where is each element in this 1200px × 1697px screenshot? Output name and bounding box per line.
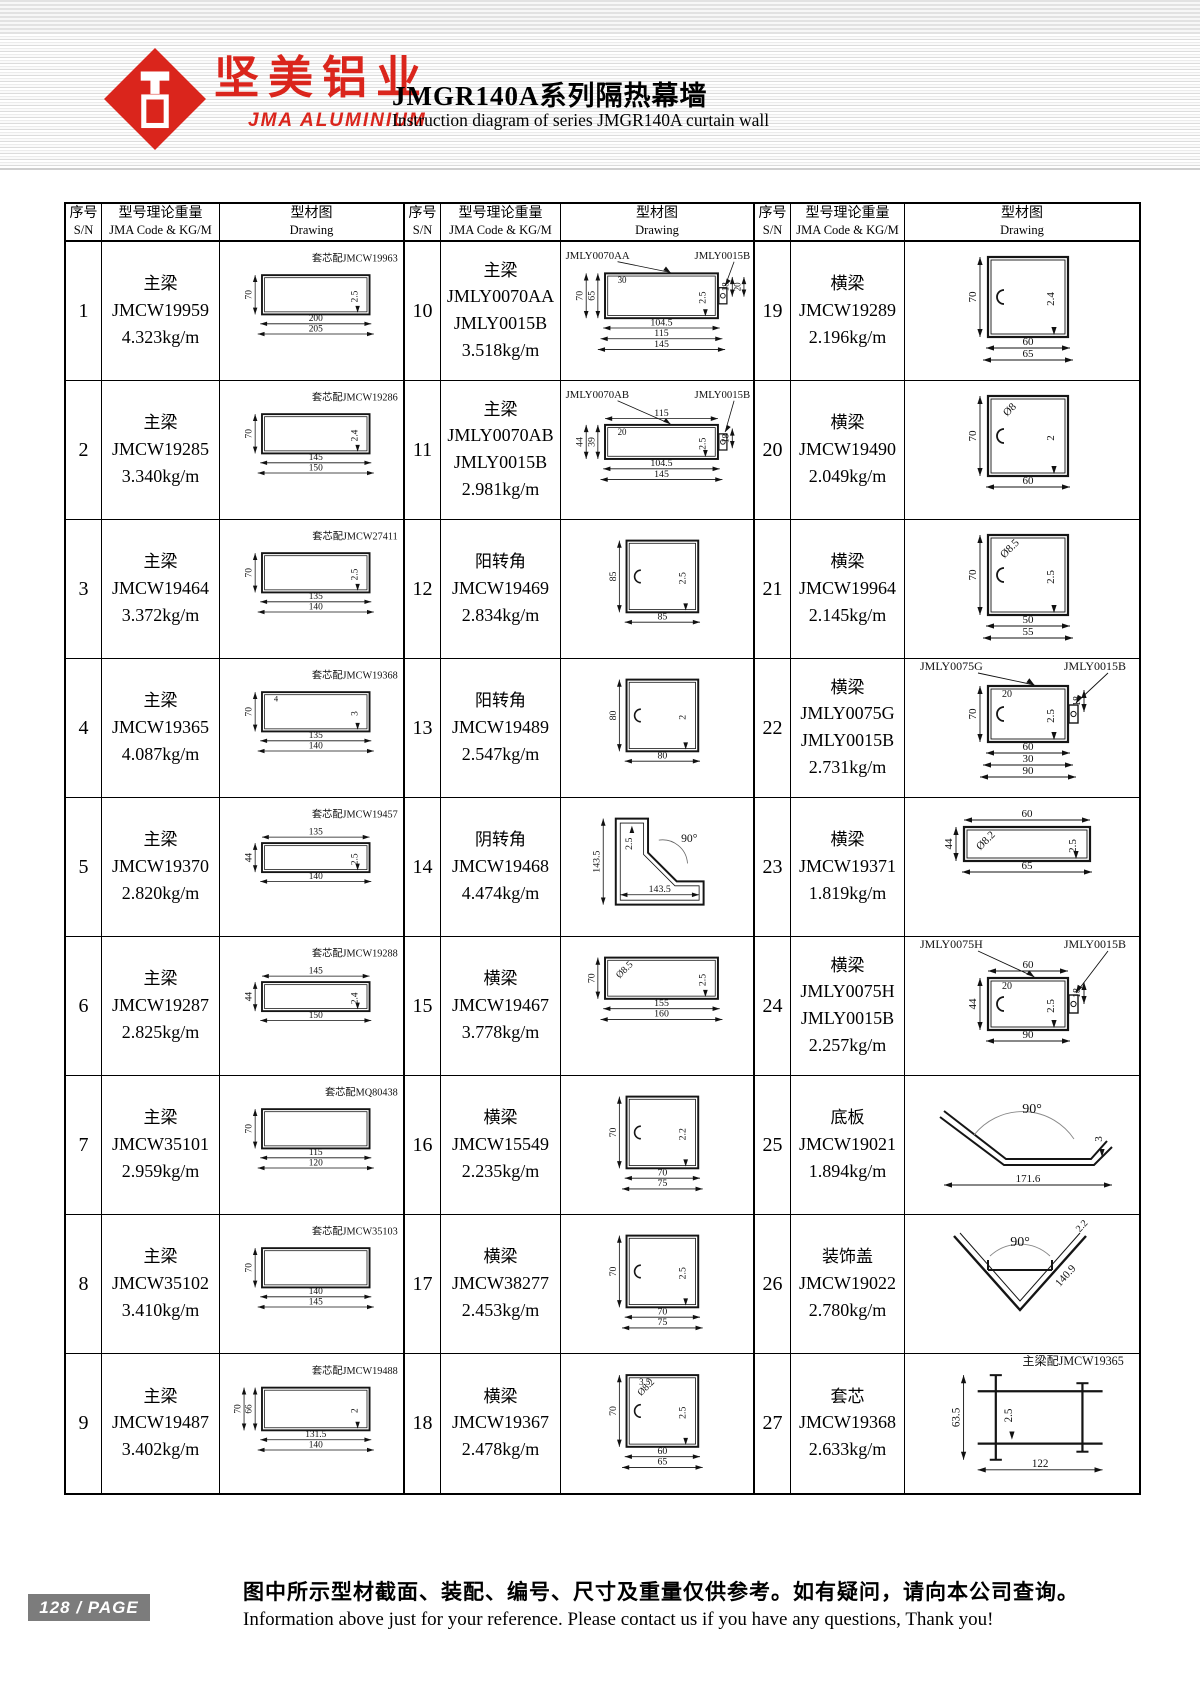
profile-drawing: 7060652.4 xyxy=(906,243,1138,379)
profile-code: JMCW19285 xyxy=(112,436,209,463)
svg-text:44: 44 xyxy=(943,838,955,850)
entry-drawing-cell: 70140145套芯配JMCW35103 xyxy=(220,1215,405,1354)
entry-code-cell: 装饰盖 JMCW19022 2.780kg/m xyxy=(791,1215,905,1354)
profile-type: 主梁 xyxy=(144,1105,178,1131)
profile-code: JMCW15549 xyxy=(452,1131,549,1158)
entry-code-cell: 主梁 JMCW19287 2.825kg/m xyxy=(102,937,220,1076)
profile-drawing: 7066131.51402套芯配JMCW19488 xyxy=(221,1355,402,1492)
svg-text:171.6: 171.6 xyxy=(1016,1173,1041,1185)
profile-drawing: 701351402.5套芯配JMCW27411 xyxy=(221,521,402,657)
entry-code-cell: 阳转角 JMCW19489 2.547kg/m xyxy=(441,659,561,798)
entry-code-cell: 横梁 JMCW19289 2.196kg/m xyxy=(791,242,905,381)
svg-text:套芯配JMCW19288: 套芯配JMCW19288 xyxy=(312,946,398,959)
svg-text:140.9: 140.9 xyxy=(1053,1262,1079,1289)
svg-text:70: 70 xyxy=(657,1167,667,1178)
profile-weight: 2.453kg/m xyxy=(462,1297,540,1324)
profile-codes: JMCW19487 xyxy=(112,1409,209,1436)
svg-text:115: 115 xyxy=(309,1148,323,1158)
profile-code: JMLY0015B xyxy=(800,1005,894,1032)
profile-type: 横梁 xyxy=(831,271,865,297)
svg-text:80: 80 xyxy=(657,750,667,761)
col-header-code-en: JMA Code & KG/M xyxy=(449,223,551,239)
svg-text:70: 70 xyxy=(967,708,979,720)
svg-text:2.5: 2.5 xyxy=(697,974,708,986)
page-subtitle: Instruction diagram of series JMGR140A c… xyxy=(392,110,769,131)
col-header-code-en: JMA Code & KG/M xyxy=(109,223,211,239)
page-number-badge: 128 / PAGE xyxy=(28,1594,150,1621)
entry-sn: 23 xyxy=(755,798,791,937)
profile-codes: JMCW19021 xyxy=(799,1131,896,1158)
entry-drawing-cell: 7070752.5 xyxy=(561,1215,755,1354)
profile-codes: JMLY0075HJMLY0015B xyxy=(800,978,894,1032)
profile-weight: 2.478kg/m xyxy=(462,1436,540,1463)
entry-drawing-cell: 70115120套芯配MQ80438 xyxy=(220,1076,405,1215)
svg-text:套芯配JMCW19286: 套芯配JMCW19286 xyxy=(312,390,398,403)
col-header-drawing-cn: 型材图 xyxy=(291,205,333,223)
profile-codes: JMCW19370 xyxy=(112,853,209,880)
profile-type: 横梁 xyxy=(831,827,865,853)
profile-type: 主梁 xyxy=(484,397,518,423)
svg-text:JMLY0015B: JMLY0015B xyxy=(695,250,751,262)
svg-text:90°: 90° xyxy=(681,832,698,845)
svg-text:2.5: 2.5 xyxy=(697,291,708,303)
svg-text:2.5: 2.5 xyxy=(1045,999,1057,1013)
entry-drawing-cell: 7013514034套芯配JMCW19368 xyxy=(220,659,405,798)
entry-sn: 24 xyxy=(755,937,791,1076)
svg-text:套芯配JMCW27411: 套芯配JMCW27411 xyxy=(312,529,397,542)
svg-text:66: 66 xyxy=(245,1404,255,1414)
profile-weight: 3.402kg/m xyxy=(122,1436,200,1463)
profile-type: 底板 xyxy=(831,1105,865,1131)
svg-text:39: 39 xyxy=(586,437,597,447)
entry-code-cell: 主梁 JMCW35102 3.410kg/m xyxy=(102,1215,220,1354)
entry-drawing-cell: 70602Ø8 xyxy=(905,381,1139,520)
profile-drawing: 85852.5 xyxy=(562,521,752,657)
entry-code-cell: 主梁 JMCW19285 3.340kg/m xyxy=(102,381,220,520)
profile-code: JMCW19022 xyxy=(799,1270,896,1297)
entry-code-cell: 套芯 JMCW19368 2.633kg/m xyxy=(791,1354,905,1493)
svg-text:JMLY0015B: JMLY0015B xyxy=(1064,660,1126,673)
profile-code: JMCW19464 xyxy=(112,575,209,602)
col-header-sn-en: S/N xyxy=(74,223,93,239)
entry-sn: 12 xyxy=(405,520,441,659)
col-header-sn: 序号S/N xyxy=(405,204,441,242)
col-header-sn-cn: 序号 xyxy=(409,205,437,223)
svg-text:70: 70 xyxy=(608,1406,619,1416)
profile-code: JMCW19287 xyxy=(112,992,209,1019)
col-header-drawing-cn: 型材图 xyxy=(636,205,678,223)
footer-note-en: Information above just for your referenc… xyxy=(243,1609,1079,1631)
profile-type: 阳转角 xyxy=(475,688,526,714)
svg-text:70: 70 xyxy=(586,973,597,983)
profile-type: 横梁 xyxy=(484,966,518,992)
svg-text:2.4: 2.4 xyxy=(351,429,361,441)
svg-text:200: 200 xyxy=(309,314,323,324)
profile-code: JMLY0075H xyxy=(800,978,894,1005)
profile-weight: 2.820kg/m xyxy=(122,880,200,907)
entry-drawing-cell: 4460902.52018JMLY0075HJMLY0015B xyxy=(905,937,1139,1076)
svg-text:70: 70 xyxy=(657,1306,667,1317)
entry-drawing-cell: 143.5143.52.590° xyxy=(561,798,755,937)
entry-code-cell: 横梁 JMCW38277 2.453kg/m xyxy=(441,1215,561,1354)
svg-text:70: 70 xyxy=(245,290,255,300)
svg-text:115: 115 xyxy=(654,408,668,419)
svg-text:3.5: 3.5 xyxy=(639,1377,651,1387)
col-header-sn: 序号S/N xyxy=(755,204,791,242)
entry-sn: 1 xyxy=(66,242,102,381)
entry-drawing-cell: 主梁配JMCW1936563.52.5122 xyxy=(905,1354,1139,1493)
svg-text:50: 50 xyxy=(1023,614,1035,626)
svg-text:145: 145 xyxy=(309,967,323,977)
svg-text:2.4: 2.4 xyxy=(1045,292,1057,306)
profile-code: JMCW19370 xyxy=(112,853,209,880)
entry-code-cell: 主梁 JMCW19365 4.087kg/m xyxy=(102,659,220,798)
profile-drawing: 7060652.5Ø8.23.5 xyxy=(562,1355,752,1492)
svg-text:104.5: 104.5 xyxy=(650,458,672,469)
svg-text:2.4: 2.4 xyxy=(351,992,361,1004)
entry-code-cell: 主梁 JMCW19959 4.323kg/m xyxy=(102,242,220,381)
catalog-page: 坚美铝业 JMA ALUMINIUM JMGR140A系列隔热幕墙 Instru… xyxy=(0,0,1200,1697)
svg-text:70: 70 xyxy=(245,1124,255,1134)
svg-text:70: 70 xyxy=(245,707,255,717)
header-striped-band: 坚美铝业 JMA ALUMINIUM JMGR140A系列隔热幕墙 Instru… xyxy=(0,0,1200,170)
profile-code: JMCW38277 xyxy=(452,1270,549,1297)
profile-weight: 2.959kg/m xyxy=(122,1158,200,1185)
profile-code: JMCW19367 xyxy=(452,1409,549,1436)
svg-text:Ø8: Ø8 xyxy=(1001,401,1019,419)
entry-sn: 7 xyxy=(66,1076,102,1215)
profile-code: JMLY0070AB xyxy=(447,422,553,449)
svg-text:55: 55 xyxy=(1023,626,1035,638)
profile-code: JMLY0015B xyxy=(447,310,554,337)
svg-text:140: 140 xyxy=(309,741,323,751)
svg-text:70: 70 xyxy=(245,1263,255,1273)
entry-code-cell: 横梁 JMCW19371 1.819kg/m xyxy=(791,798,905,937)
profile-weight: 1.894kg/m xyxy=(809,1158,887,1185)
svg-text:套芯配JMCW19368: 套芯配JMCW19368 xyxy=(312,668,398,681)
svg-text:2: 2 xyxy=(678,715,689,720)
svg-text:135: 135 xyxy=(309,731,323,741)
svg-text:143.5: 143.5 xyxy=(592,850,603,872)
profile-drawing: 4439115104.51452.52018JMLY0070ABJMLY0015… xyxy=(562,382,752,518)
profile-drawing: 7070752.2 xyxy=(562,1077,752,1213)
profile-drawing: 7013514034套芯配JMCW19368 xyxy=(221,660,402,796)
col-header-sn: 序号S/N xyxy=(66,204,102,242)
profile-type: 阳转角 xyxy=(475,549,526,575)
profile-code: JMCW19469 xyxy=(452,575,549,602)
profile-weight: 2.235kg/m xyxy=(462,1158,540,1185)
entry-drawing-cell: 4439115104.51452.52018JMLY0070ABJMLY0015… xyxy=(561,381,755,520)
svg-text:Ø8.5: Ø8.5 xyxy=(614,959,636,981)
profile-drawing: 702002052.5套芯配JMCW19963 xyxy=(221,243,402,379)
col-header-sn-cn: 序号 xyxy=(70,205,98,223)
entry-code-cell: 底板 JMCW19021 1.894kg/m xyxy=(791,1076,905,1215)
profile-codes: JMCW19469 xyxy=(452,575,549,602)
col-header-drawing-cn: 型材图 xyxy=(1001,205,1043,223)
svg-text:60: 60 xyxy=(1023,475,1035,487)
profile-weight: 2.825kg/m xyxy=(122,1019,200,1046)
profile-drawing: 706030902.52018JMLY0075GJMLY0015B xyxy=(906,660,1138,796)
profile-codes: JMCW19959 xyxy=(112,297,209,324)
entry-sn: 18 xyxy=(405,1354,441,1493)
profile-weight: 4.323kg/m xyxy=(122,324,200,351)
svg-text:145: 145 xyxy=(654,469,669,480)
entry-code-cell: 主梁 JMCW35101 2.959kg/m xyxy=(102,1076,220,1215)
entry-drawing-cell: 90°3171.6 xyxy=(905,1076,1139,1215)
profile-drawing: 90°3171.6 xyxy=(906,1077,1138,1213)
svg-text:18: 18 xyxy=(721,433,731,442)
entry-code-cell: 主梁 JMCW19370 2.820kg/m xyxy=(102,798,220,937)
svg-text:140: 140 xyxy=(309,872,323,882)
svg-text:60: 60 xyxy=(657,1446,667,1457)
svg-text:155: 155 xyxy=(654,998,669,1009)
profile-type: 装饰盖 xyxy=(822,1244,873,1270)
profile-code: JMCW19289 xyxy=(799,297,896,324)
svg-text:140: 140 xyxy=(309,602,323,612)
profile-type: 主梁 xyxy=(144,1384,178,1410)
profile-codes: JMCW19467 xyxy=(452,992,549,1019)
profile-code: JMCW19959 xyxy=(112,297,209,324)
entry-drawing-cell: 702002052.5套芯配JMCW19963 xyxy=(220,242,405,381)
col-header-code-cn: 型号理论重量 xyxy=(459,205,543,223)
profile-weight: 1.819kg/m xyxy=(809,880,887,907)
profile-code: JMCW19365 xyxy=(112,714,209,741)
profile-code: JMCW19489 xyxy=(452,714,549,741)
entry-sn: 17 xyxy=(405,1215,441,1354)
svg-text:70: 70 xyxy=(575,291,586,301)
profile-weight: 3.778kg/m xyxy=(462,1019,540,1046)
profile-code: JMCW19021 xyxy=(799,1131,896,1158)
profile-codes: JMCW38277 xyxy=(452,1270,549,1297)
entry-drawing-cell: 7066131.51402套芯配JMCW19488 xyxy=(220,1354,405,1493)
svg-text:63.5: 63.5 xyxy=(951,1407,963,1427)
svg-text:145: 145 xyxy=(309,453,323,463)
profile-codes: JMCW35101 xyxy=(112,1131,209,1158)
svg-text:2.5: 2.5 xyxy=(697,437,708,449)
profile-code: JMLY0015B xyxy=(447,449,553,476)
svg-text:60: 60 xyxy=(1023,336,1035,348)
profile-code: JMCW19371 xyxy=(799,853,896,880)
entry-drawing-cell: 7050552.5Ø8.5 xyxy=(905,520,1139,659)
profile-type: 主梁 xyxy=(144,549,178,575)
svg-text:JMLY0015B: JMLY0015B xyxy=(1064,938,1126,951)
profile-weight: 4.087kg/m xyxy=(122,741,200,768)
profile-codes: JMCW15549 xyxy=(452,1131,549,1158)
svg-text:44: 44 xyxy=(575,437,586,447)
profile-weight: 3.410kg/m xyxy=(122,1297,200,1324)
profile-type: 横梁 xyxy=(831,410,865,436)
svg-text:60: 60 xyxy=(1023,741,1035,753)
profile-codes: JMLY0070ABJMLY0015B xyxy=(447,422,553,476)
svg-text:115: 115 xyxy=(654,328,668,339)
profile-code: JMCW19467 xyxy=(452,992,549,1019)
profile-type: 套芯 xyxy=(831,1384,865,1410)
entry-sn: 21 xyxy=(755,520,791,659)
profile-codes: JMCW19489 xyxy=(452,714,549,741)
entry-drawing-cell: 7070752.2 xyxy=(561,1076,755,1215)
svg-text:2.5: 2.5 xyxy=(1045,709,1057,723)
profile-code: JMCW35101 xyxy=(112,1131,209,1158)
svg-text:2.5: 2.5 xyxy=(351,568,361,580)
footer-note: 图中所示型材截面、装配、编号、尺寸及重量仅供参考。如有疑问，请向本公司查询。 I… xyxy=(243,1576,1079,1631)
svg-text:60: 60 xyxy=(1023,959,1035,971)
profile-code: JMLY0015B xyxy=(800,727,894,754)
svg-text:20: 20 xyxy=(618,427,627,437)
svg-text:160: 160 xyxy=(654,1009,669,1020)
profile-code: JMCW19468 xyxy=(452,853,549,880)
entry-drawing-cell: 441351402.5套芯配JMCW19457 xyxy=(220,798,405,937)
profile-codes: JMCW19367 xyxy=(452,1409,549,1436)
profile-codes: JMCW19371 xyxy=(799,853,896,880)
entry-code-cell: 横梁 JMCW19467 3.778kg/m xyxy=(441,937,561,1076)
entry-drawing-cell: 7060652.4 xyxy=(905,242,1139,381)
col-header-drawing: 型材图Drawing xyxy=(220,204,405,242)
svg-text:70: 70 xyxy=(234,1404,244,1414)
entry-drawing-cell: 80802 xyxy=(561,659,755,798)
profile-code: JMCW19368 xyxy=(799,1409,896,1436)
profile-drawing: 90°140.92.2 xyxy=(906,1216,1138,1352)
profile-codes: JMLY0075GJMLY0015B xyxy=(800,700,894,754)
entry-code-cell: 主梁 JMLY0070AAJMLY0015B 3.518kg/m xyxy=(441,242,561,381)
entry-code-cell: 横梁 JMCW19964 2.145kg/m xyxy=(791,520,905,659)
svg-text:2.5: 2.5 xyxy=(1003,1408,1015,1422)
svg-text:主梁配JMCW19365: 主梁配JMCW19365 xyxy=(1022,1355,1123,1368)
profile-type: 主梁 xyxy=(144,688,178,714)
svg-text:2.5: 2.5 xyxy=(351,290,361,302)
profile-weight: 2.547kg/m xyxy=(462,741,540,768)
svg-text:70: 70 xyxy=(967,569,979,581)
profile-drawing: 701551602.5Ø8.5 xyxy=(562,938,752,1074)
svg-text:65: 65 xyxy=(657,1457,667,1468)
entry-code-cell: 阴转角 JMCW19468 4.474kg/m xyxy=(441,798,561,937)
svg-text:套芯配JMCW19963: 套芯配JMCW19963 xyxy=(312,251,398,264)
entry-drawing-cell: 701551602.5Ø8.5 xyxy=(561,937,755,1076)
svg-text:60: 60 xyxy=(1022,808,1034,820)
profile-code: JMCW19490 xyxy=(799,436,896,463)
svg-text:3: 3 xyxy=(1093,1136,1105,1142)
col-header-code: 型号理论重量JMA Code & KG/M xyxy=(102,204,220,242)
entry-code-cell: 横梁 JMCW19490 2.049kg/m xyxy=(791,381,905,520)
entry-code-cell: 横梁 JMCW15549 2.235kg/m xyxy=(441,1076,561,1215)
svg-text:Ø8.5: Ø8.5 xyxy=(998,537,1022,561)
svg-text:套芯配JMCW19457: 套芯配JMCW19457 xyxy=(312,807,398,820)
col-header-sn-cn: 序号 xyxy=(759,205,787,223)
profile-weight: 2.049kg/m xyxy=(809,463,887,490)
svg-text:44: 44 xyxy=(245,853,255,863)
profile-drawing: 4460652.5Ø8.2 xyxy=(906,799,1138,935)
entry-code-cell: 主梁 JMLY0070ABJMLY0015B 2.981kg/m xyxy=(441,381,561,520)
profile-type: 阴转角 xyxy=(475,827,526,853)
entry-sn: 22 xyxy=(755,659,791,798)
col-header-code-en: JMA Code & KG/M xyxy=(796,223,898,239)
svg-text:JMLY0070AB: JMLY0070AB xyxy=(566,389,629,401)
col-header-drawing: 型材图Drawing xyxy=(905,204,1139,242)
svg-text:150: 150 xyxy=(309,463,323,473)
profile-type: 主梁 xyxy=(484,258,518,284)
svg-text:2.2: 2.2 xyxy=(1074,1218,1091,1235)
svg-text:70: 70 xyxy=(245,429,255,439)
svg-text:2: 2 xyxy=(351,1408,361,1413)
svg-text:Ø8.2: Ø8.2 xyxy=(974,829,998,853)
svg-text:135: 135 xyxy=(309,828,323,838)
svg-text:2.5: 2.5 xyxy=(1067,839,1079,853)
col-header-drawing-en: Drawing xyxy=(1000,223,1044,239)
profile-weight: 2.196kg/m xyxy=(809,324,887,351)
profile-drawing: 主梁配JMCW1936563.52.5122 xyxy=(906,1355,1138,1492)
svg-text:2.2: 2.2 xyxy=(678,1128,689,1140)
svg-text:20: 20 xyxy=(732,282,742,291)
svg-text:70: 70 xyxy=(967,291,979,303)
profile-type: 主梁 xyxy=(144,827,178,853)
entry-sn: 20 xyxy=(755,381,791,520)
svg-text:75: 75 xyxy=(657,1317,667,1328)
svg-text:70: 70 xyxy=(608,1266,619,1276)
entry-code-cell: 横梁 JMLY0075HJMLY0015B 2.257kg/m xyxy=(791,937,905,1076)
profile-type: 主梁 xyxy=(144,1244,178,1270)
profile-codes: JMCW19468 xyxy=(452,853,549,880)
profile-drawing: 7070752.5 xyxy=(562,1216,752,1352)
svg-text:143.5: 143.5 xyxy=(649,884,671,895)
svg-text:90: 90 xyxy=(1023,765,1035,777)
entry-sn: 8 xyxy=(66,1215,102,1354)
svg-text:131.5: 131.5 xyxy=(305,1430,326,1440)
profile-codes: JMCW19490 xyxy=(799,436,896,463)
svg-text:套芯配MQ80438: 套芯配MQ80438 xyxy=(325,1085,398,1098)
svg-text:3: 3 xyxy=(351,711,361,716)
entry-code-cell: 阳转角 JMCW19469 2.834kg/m xyxy=(441,520,561,659)
svg-text:JMLY0075H: JMLY0075H xyxy=(920,938,983,951)
svg-text:70: 70 xyxy=(608,1127,619,1137)
profile-codes: JMCW19287 xyxy=(112,992,209,1019)
col-header-code-cn: 型号理论重量 xyxy=(119,205,203,223)
svg-text:65: 65 xyxy=(586,291,597,301)
entry-code-cell: 横梁 JMCW19367 2.478kg/m xyxy=(441,1354,561,1493)
profile-type: 横梁 xyxy=(484,1105,518,1131)
svg-text:70: 70 xyxy=(245,568,255,578)
entry-sn: 15 xyxy=(405,937,441,1076)
col-header-code: 型号理论重量JMA Code & KG/M xyxy=(441,204,561,242)
profile-code: JMCW35102 xyxy=(112,1270,209,1297)
svg-text:2: 2 xyxy=(1045,435,1057,441)
svg-text:85: 85 xyxy=(608,571,619,581)
profile-weight: 4.474kg/m xyxy=(462,880,540,907)
profile-weight: 2.633kg/m xyxy=(809,1436,887,1463)
svg-text:套芯配JMCW19488: 套芯配JMCW19488 xyxy=(312,1364,398,1377)
entry-sn: 25 xyxy=(755,1076,791,1215)
svg-text:2.5: 2.5 xyxy=(678,1407,689,1419)
entry-sn: 2 xyxy=(66,381,102,520)
svg-text:80: 80 xyxy=(608,710,619,720)
svg-text:JMLY0075G: JMLY0075G xyxy=(920,660,983,673)
profile-drawing: 701451502.4套芯配JMCW19286 xyxy=(221,382,402,518)
entry-drawing-cell: 85852.5 xyxy=(561,520,755,659)
svg-text:65: 65 xyxy=(1022,860,1034,872)
profile-codes: JMCW19289 xyxy=(799,297,896,324)
entry-drawing-cell: 701451502.4套芯配JMCW19286 xyxy=(220,381,405,520)
entry-sn: 19 xyxy=(755,242,791,381)
svg-text:140: 140 xyxy=(309,1287,323,1297)
profile-weight: 3.340kg/m xyxy=(122,463,200,490)
entry-drawing-cell: 7065104.51151452.5301820JMLY0070AAJMLY00… xyxy=(561,242,755,381)
profile-weight: 2.834kg/m xyxy=(462,602,540,629)
profile-weight: 2.731kg/m xyxy=(809,754,887,781)
svg-text:2.5: 2.5 xyxy=(678,572,689,584)
svg-text:122: 122 xyxy=(1032,1458,1049,1470)
entry-sn: 11 xyxy=(405,381,441,520)
profile-codes: JMCW19368 xyxy=(799,1409,896,1436)
profile-weight: 2.780kg/m xyxy=(809,1297,887,1324)
profile-drawing: 7050552.5Ø8.5 xyxy=(906,521,1138,657)
